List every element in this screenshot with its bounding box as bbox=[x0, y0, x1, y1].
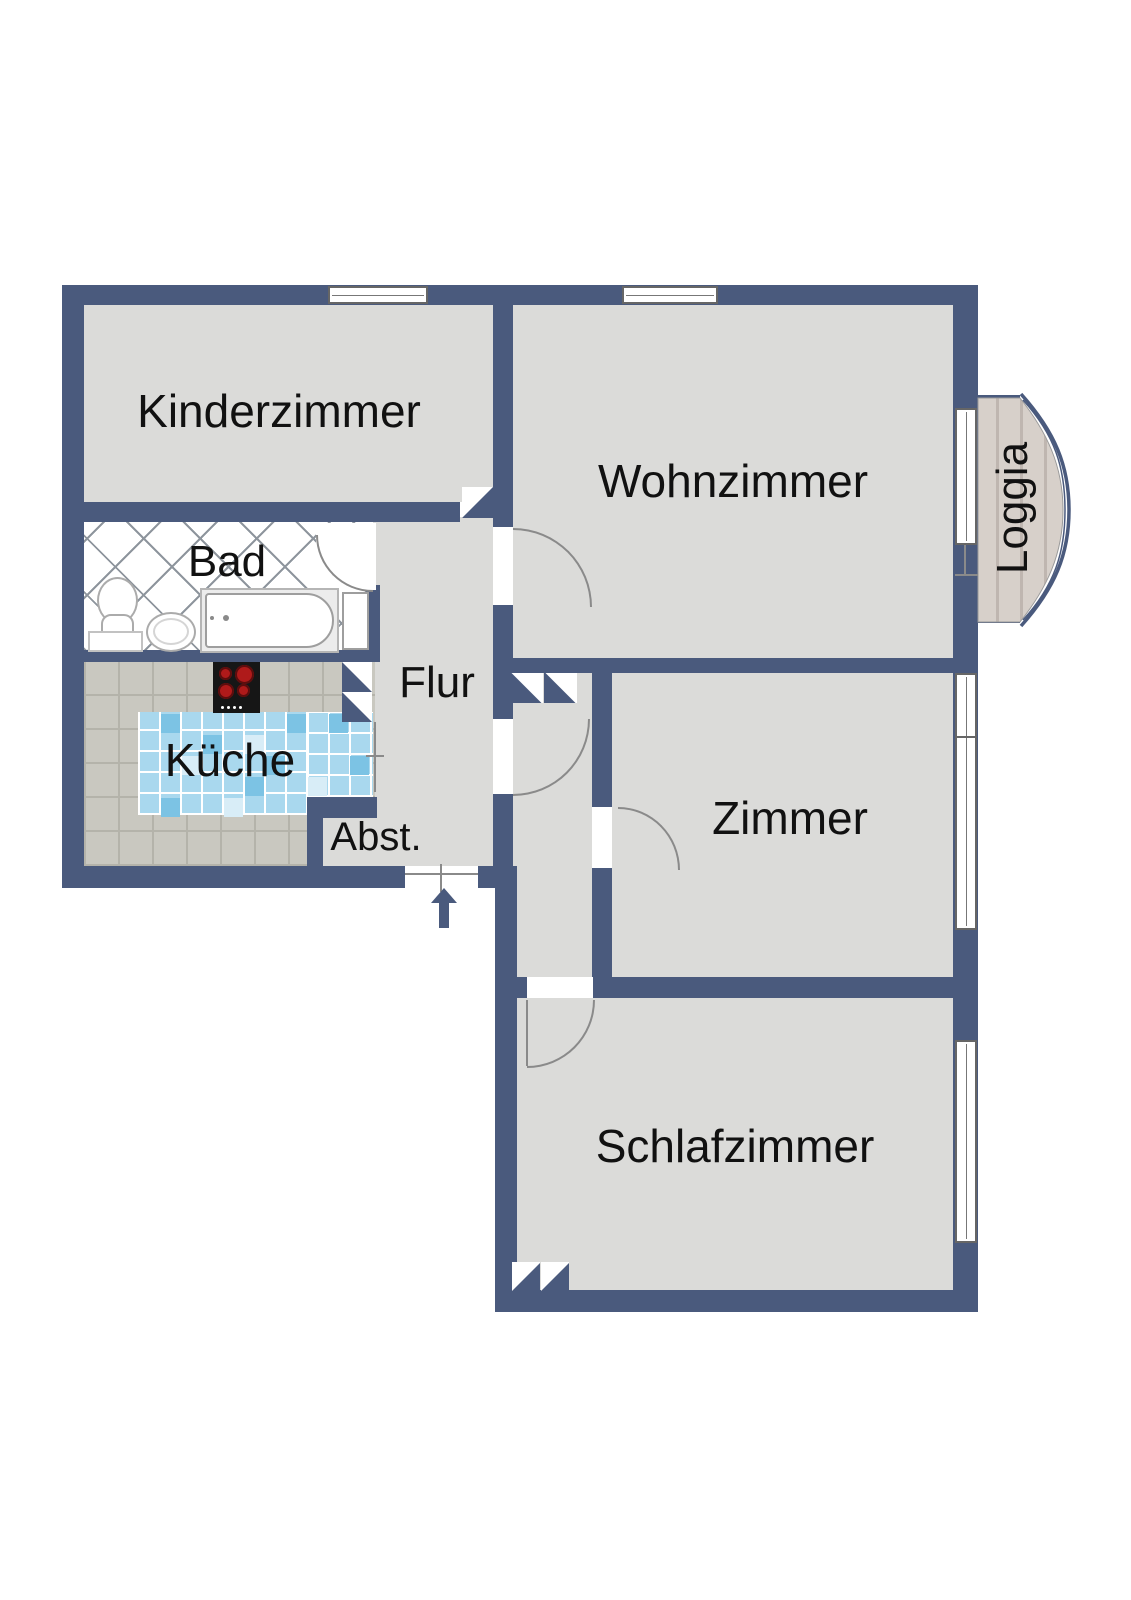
wall-abst-left bbox=[307, 797, 323, 866]
room-label-kinderzimmer: Kinderzimmer bbox=[137, 388, 421, 434]
wall-outer-left bbox=[62, 285, 84, 888]
door-opening-schlafzimmer bbox=[527, 977, 593, 998]
room-label-zimmer: Zimmer bbox=[712, 795, 868, 841]
door-notch-corridor bbox=[544, 673, 577, 703]
kueche-pass-line bbox=[374, 722, 376, 792]
room-label-kueche: Küche bbox=[165, 737, 295, 783]
door-opening-corridor bbox=[493, 719, 513, 794]
bathtub-faucet bbox=[223, 615, 229, 621]
door-opening-wohnzimmer bbox=[493, 527, 513, 605]
window-wohnzimmer bbox=[622, 286, 718, 304]
room-label-schlafzimmer: Schlafzimmer bbox=[596, 1123, 875, 1169]
wall-outer-bottom bbox=[495, 1290, 978, 1312]
sink-icon-inner bbox=[153, 618, 189, 645]
window-zimmer-divider bbox=[955, 736, 977, 738]
wall-zimmer-schlafzimmer bbox=[592, 977, 955, 998]
window-schlafzimmer bbox=[955, 1040, 977, 1243]
stove-icon bbox=[213, 662, 260, 713]
loggia-door-line bbox=[964, 545, 966, 576]
door-notch-kueche bbox=[342, 692, 372, 722]
room-label-abstellraum: Abst. bbox=[330, 817, 421, 857]
floor-plan: Kinderzimmer Wohnzimmer Bad Flur Küche A… bbox=[0, 0, 1131, 1600]
entrance-arrow-shaft bbox=[439, 902, 449, 928]
door-notch-schlafzimmer bbox=[541, 1262, 569, 1292]
entrance-arrow-icon bbox=[431, 888, 457, 903]
wall-wohnzimmer-zimmer bbox=[512, 658, 955, 673]
door-notch-schlafzimmer bbox=[512, 1262, 540, 1292]
wall-schlafzimmer-door-stub bbox=[495, 977, 527, 998]
room-label-flur: Flur bbox=[399, 661, 475, 705]
bad-niche bbox=[342, 592, 369, 650]
kueche-pass-tick bbox=[366, 755, 384, 757]
door-notch-corridor bbox=[510, 673, 543, 703]
wall-outer-bottom-left bbox=[62, 866, 405, 888]
room-label-loggia: Loggia bbox=[988, 388, 1038, 628]
room-label-bad: Bad bbox=[188, 540, 266, 584]
door-opening-zimmer bbox=[592, 807, 612, 868]
wall-kinderzimmer-bad bbox=[84, 502, 460, 522]
door-notch-kinderzimmer bbox=[462, 487, 493, 518]
bathtub-drain bbox=[210, 616, 214, 620]
wall-kinderzimmer-wohnzimmer bbox=[493, 285, 513, 527]
window-loggia-door bbox=[955, 408, 977, 545]
door-notch-kueche bbox=[342, 662, 372, 692]
wall-outer-left-lower bbox=[495, 868, 517, 1312]
window-zimmer bbox=[955, 673, 977, 930]
wall-corridor-zimmer bbox=[592, 672, 612, 807]
wall-flur-corridor bbox=[493, 794, 513, 868]
toilet-base bbox=[88, 631, 143, 652]
window-kinderzimmer bbox=[328, 286, 428, 304]
loggia-door-tick bbox=[955, 574, 978, 576]
wall-outer-top bbox=[62, 285, 978, 305]
door-leaf-schlafzimmer bbox=[526, 1000, 528, 1066]
room-label-wohnzimmer: Wohnzimmer bbox=[598, 458, 868, 504]
